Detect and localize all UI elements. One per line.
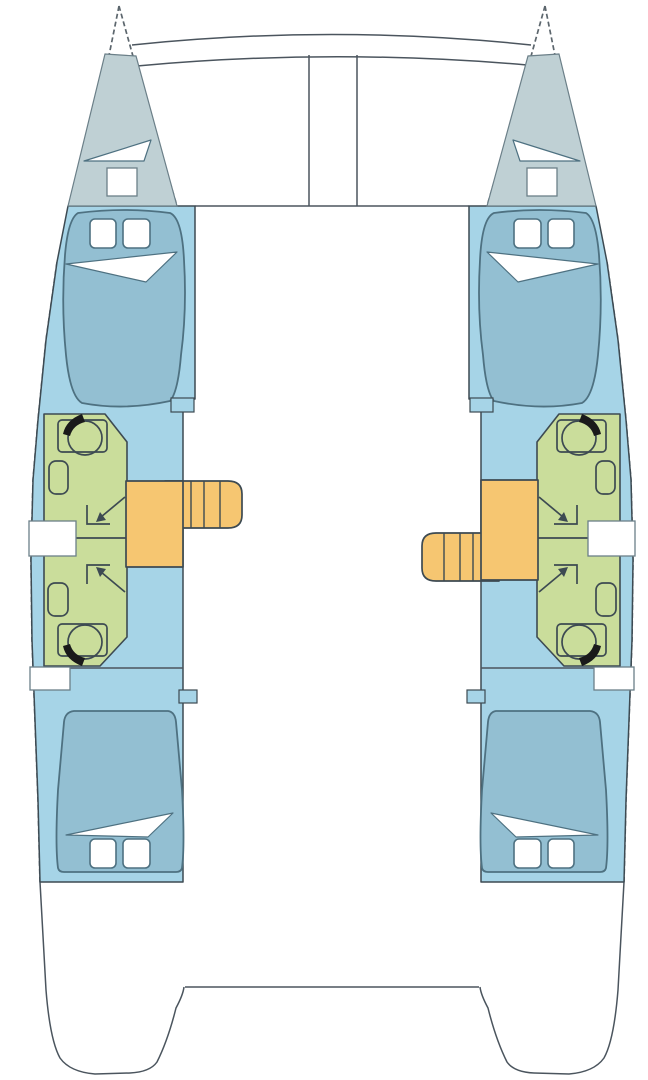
port-forward-step	[171, 398, 194, 412]
port-mid-hull-window	[29, 521, 76, 556]
port-aft-hull-window	[30, 667, 70, 690]
starboard-aft-step	[467, 690, 485, 703]
deck-plan-svg	[0, 0, 648, 1080]
port-forward-pillow-icon	[90, 219, 116, 248]
deck-plan-canvas	[0, 0, 648, 1080]
starboard-aft-bed-icon	[481, 711, 608, 872]
port-aft-step	[179, 690, 197, 703]
port-stern-outline	[40, 882, 184, 1074]
port-aft-pillow-icon	[90, 839, 116, 868]
port-stair-landing	[126, 481, 183, 567]
starboard-forward-pillow-icon	[548, 219, 574, 248]
port-forepeak-hatch-icon	[107, 168, 137, 196]
starboard-stairs	[422, 480, 538, 581]
starboard-forepeak-hatch-icon	[527, 168, 557, 196]
port-stairs	[126, 481, 242, 567]
starboard-aft-pillow2-icon	[514, 839, 541, 868]
forward-crossbeam-lower-line	[137, 57, 527, 66]
port-aft-bed-icon	[57, 711, 184, 872]
starboard-forward-pillow2-icon	[514, 219, 541, 248]
starboard-stair-landing	[481, 480, 538, 580]
starboard-aft-hull-window	[594, 667, 634, 690]
forward-crossbeam-upper-line	[132, 35, 531, 46]
port-forward-pillow2-icon	[123, 219, 150, 248]
port-aft-pillow2-icon	[123, 839, 150, 868]
starboard-stern-outline	[480, 882, 624, 1074]
starboard-forward-step	[470, 398, 493, 412]
starboard-aft-pillow-icon	[548, 839, 574, 868]
starboard-mid-hull-window	[588, 521, 635, 556]
